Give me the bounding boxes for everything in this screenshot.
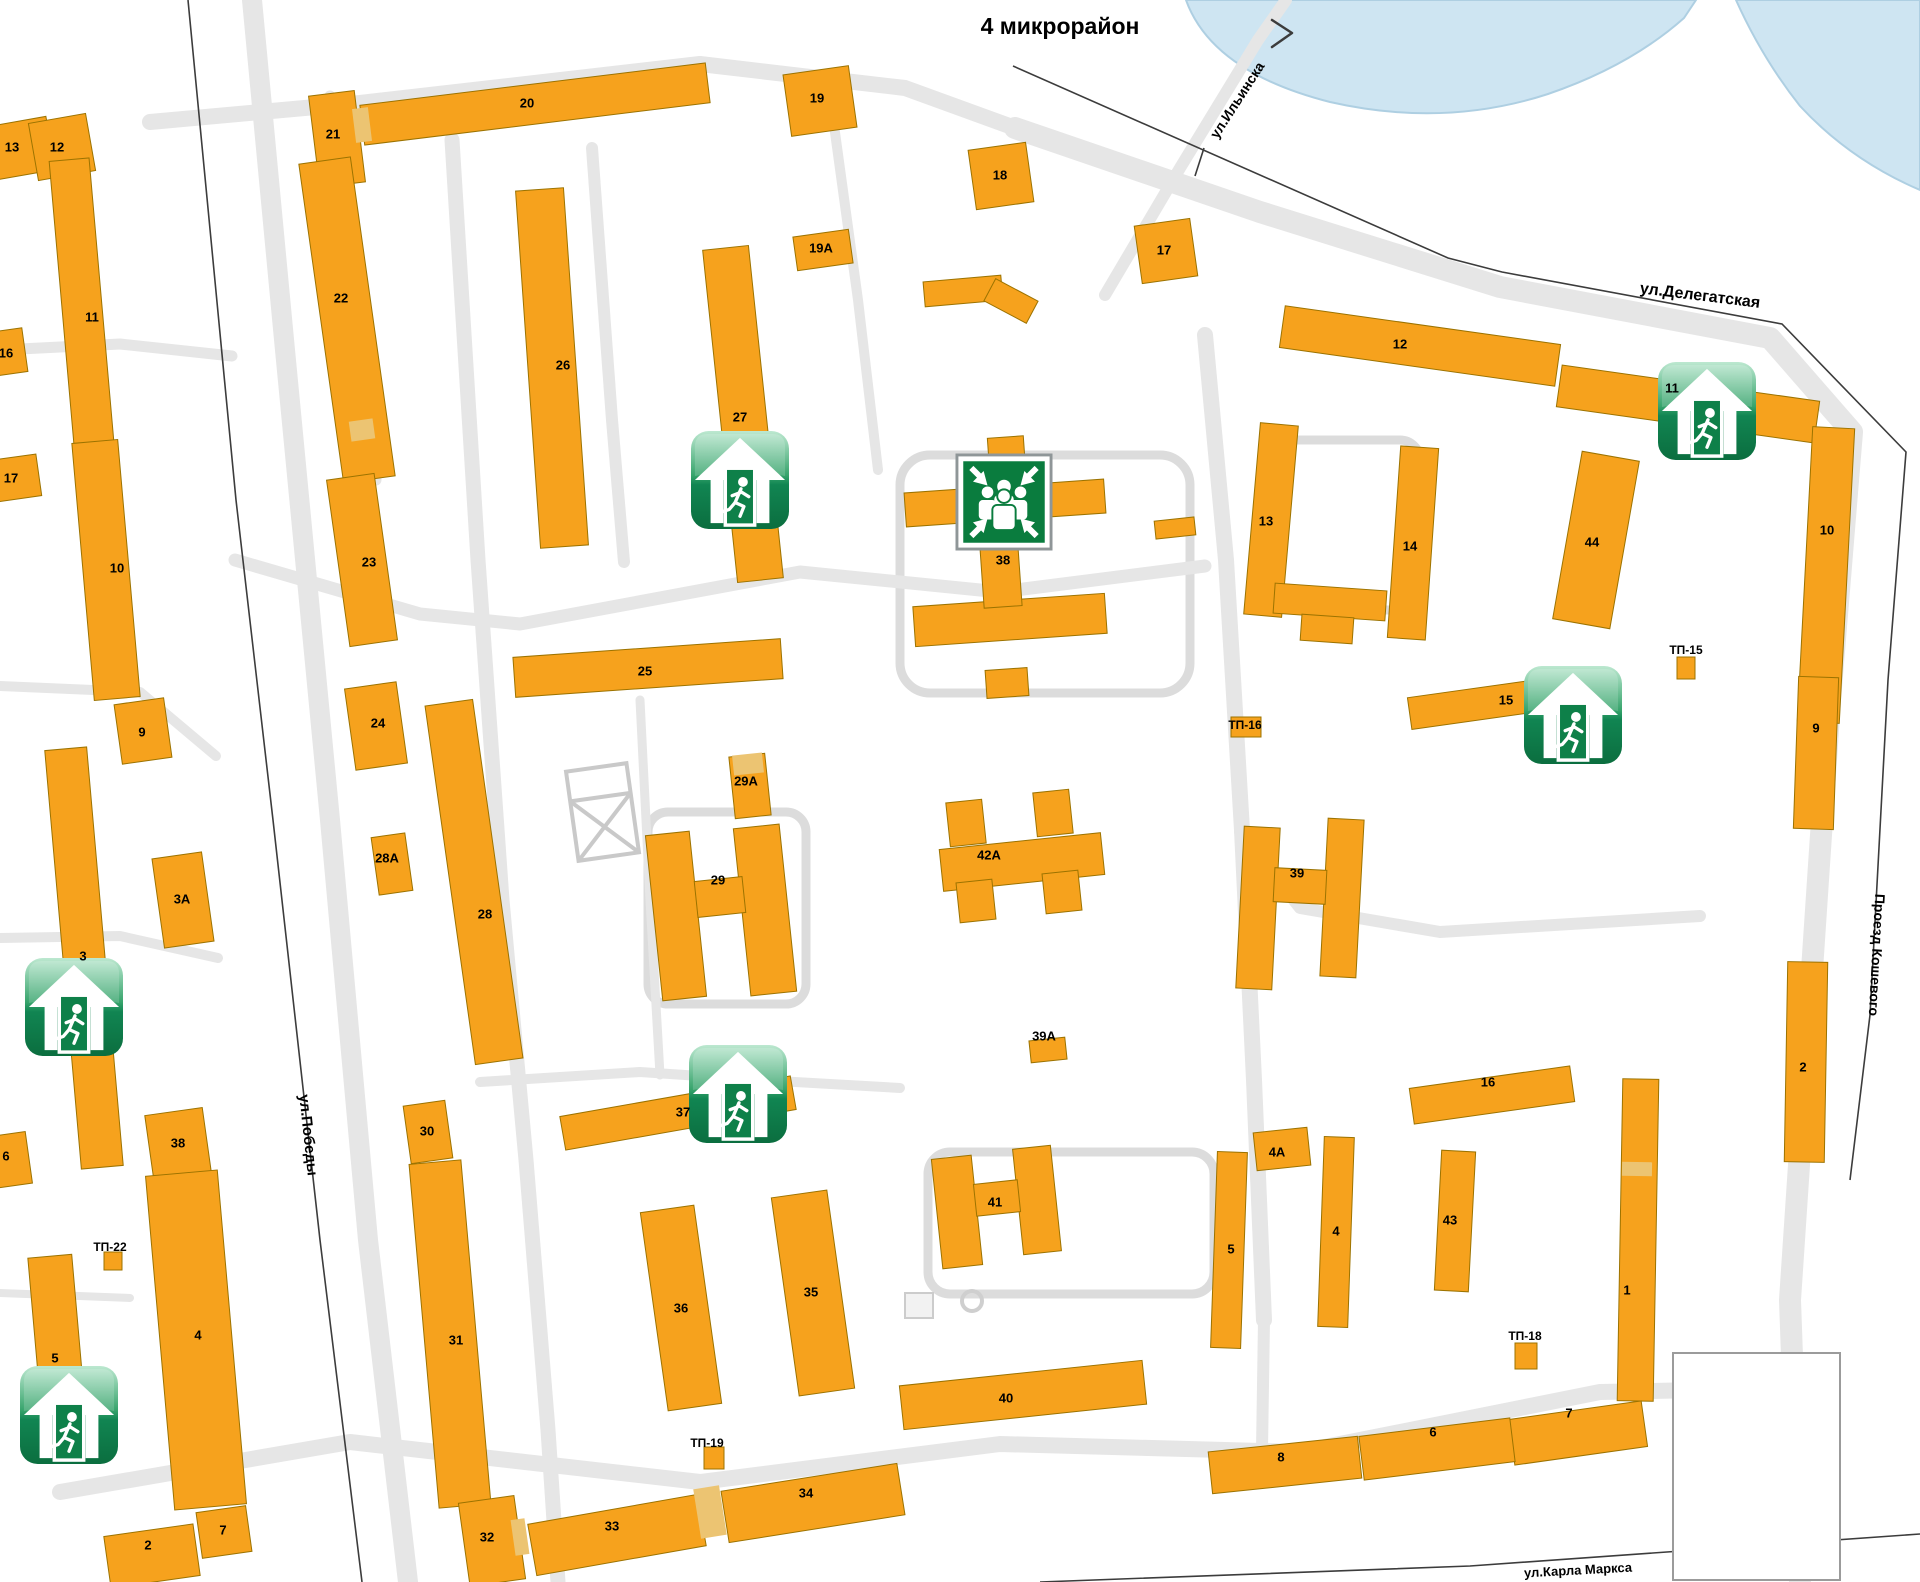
building-label: 22	[334, 291, 348, 306]
building-label: 5	[51, 1351, 58, 1366]
building-label: 40	[999, 1391, 1013, 1406]
road	[1105, 0, 1286, 295]
evacuation-exit-icon	[25, 958, 123, 1056]
building-label: 38	[171, 1136, 185, 1151]
building-passage	[732, 752, 764, 775]
building-label: 9	[138, 725, 145, 740]
building-label: 15	[1499, 693, 1513, 708]
building-label: 36	[674, 1301, 688, 1316]
evacuation-exit-icon	[691, 431, 789, 529]
building-label: 17	[1157, 243, 1171, 258]
building-12	[1279, 306, 1560, 386]
building-label: 30	[420, 1124, 434, 1139]
substation-label: ТП-18	[1508, 1329, 1542, 1343]
building-label: 21	[326, 127, 340, 142]
building-9	[1793, 676, 1838, 829]
substation-box	[1515, 1343, 1537, 1369]
building-40	[899, 1360, 1146, 1429]
building-label: 44	[1585, 535, 1600, 550]
building-41	[931, 1155, 982, 1269]
building-label: 43	[1443, 1213, 1457, 1228]
building-26	[516, 188, 589, 548]
icons-layer	[20, 362, 1756, 1464]
building-label: 23	[362, 555, 376, 570]
evacuation-exit-icon	[689, 1045, 787, 1143]
road	[1262, 1320, 1264, 1450]
assembly-point-icon	[956, 454, 1053, 551]
building-label: 31	[449, 1333, 463, 1348]
building-2	[104, 1524, 200, 1582]
substation-label: ТП-15	[1669, 643, 1703, 657]
building-label: 8	[1277, 1450, 1284, 1465]
building-label: 16	[0, 346, 13, 361]
substation-box	[104, 1252, 122, 1270]
building-label: 19A	[809, 241, 833, 256]
building-label: 35	[804, 1285, 818, 1300]
district-map-page: 13121116171093A33865427202122232428A2830…	[0, 0, 1920, 1582]
substation-label: ТП-16	[1228, 718, 1262, 732]
building-label: 14	[1403, 539, 1418, 554]
building-label: 6	[2, 1149, 9, 1164]
building-label: 18	[993, 168, 1007, 183]
building	[1273, 583, 1387, 621]
building-passage	[349, 418, 376, 441]
building-label: 5	[1227, 1242, 1234, 1257]
building-label: 28A	[375, 851, 399, 866]
building	[1154, 517, 1196, 539]
street-label: ул.Победы	[295, 1093, 320, 1176]
construction-frame	[566, 763, 639, 861]
building-label: 41	[988, 1195, 1002, 1210]
river-water	[1736, 0, 1920, 190]
building-label: 3	[79, 949, 86, 964]
building	[984, 279, 1038, 324]
building-label: 13	[1259, 514, 1273, 529]
building-label: 16	[1481, 1075, 1495, 1090]
playground-pad	[905, 1293, 933, 1318]
road	[830, 96, 878, 470]
building-label: 32	[480, 1530, 494, 1545]
building-label: 2	[144, 1538, 151, 1553]
district-map: 13121116171093A33865427202122232428A2830…	[0, 0, 1920, 1582]
building-passage	[1622, 1162, 1652, 1177]
building-41	[1013, 1145, 1062, 1254]
substation-label: ТП-19	[690, 1436, 724, 1450]
building-label: 11	[85, 310, 99, 325]
river-water	[1186, 0, 1696, 113]
building-label: 33	[605, 1519, 619, 1534]
building-label: 29A	[734, 774, 758, 789]
building-10	[72, 439, 140, 700]
building-label: 19	[810, 91, 824, 106]
building-label: 12	[50, 140, 64, 155]
building	[1300, 614, 1354, 644]
road	[0, 344, 232, 356]
street-label: Проезд Кошевого	[1866, 893, 1888, 1016]
building-label: 24	[371, 716, 386, 731]
building-label: 42A	[977, 848, 1001, 863]
evacuation-exit-icon	[1524, 666, 1622, 764]
road	[592, 148, 624, 562]
building-1	[1617, 1079, 1659, 1402]
building-label: 38	[996, 553, 1010, 568]
building-22	[299, 157, 395, 483]
building-label: 9	[1812, 721, 1819, 736]
building-28	[425, 699, 523, 1064]
substation-box	[704, 1447, 724, 1469]
building-label: 28	[478, 907, 492, 922]
building-label: 25	[638, 664, 652, 679]
building-label: 3A	[174, 892, 191, 907]
building-label: 37	[676, 1105, 690, 1120]
map-title: 4 микрорайон	[981, 13, 1140, 39]
building-label: 26	[556, 358, 570, 373]
building-label: 10	[1820, 523, 1834, 538]
building-label: 6	[1429, 1425, 1436, 1440]
building-42A	[956, 879, 996, 923]
evacuation-exit-icon	[1658, 362, 1756, 460]
building-39	[1320, 818, 1364, 978]
building-38	[985, 668, 1029, 699]
building-label: 4	[1332, 1224, 1340, 1239]
building-label: 27	[733, 410, 747, 425]
substation-label: ТП-22	[93, 1240, 127, 1254]
roads-layer	[0, 0, 1852, 1582]
building-label: 12	[1393, 337, 1407, 352]
building-label: 7	[1565, 1406, 1572, 1421]
building-label: 20	[520, 96, 534, 111]
building-42A	[946, 799, 986, 847]
evacuation-exit-icon	[20, 1366, 118, 1464]
building-label: 34	[799, 1486, 814, 1501]
building-label: 13	[5, 140, 19, 155]
building-label: 2	[1799, 1060, 1806, 1075]
building-label: 4A	[1269, 1145, 1286, 1160]
substation-box	[1677, 657, 1695, 679]
empty-block	[1673, 1353, 1840, 1580]
street-label: ул.Карла Маркса	[1524, 1560, 1633, 1581]
building-42A	[1042, 870, 1082, 914]
building-6	[1359, 1418, 1515, 1480]
building-label: 39A	[1032, 1029, 1056, 1044]
building-label: 7	[219, 1523, 226, 1538]
building-label: 39	[1290, 866, 1304, 881]
water-layer	[1186, 0, 1920, 190]
building-label: 10	[110, 561, 124, 576]
building-label: 11	[1665, 381, 1679, 396]
building-label: 1	[1623, 1283, 1630, 1298]
building-label: 29	[711, 873, 725, 888]
building-label: 17	[4, 471, 18, 486]
building-42A	[1033, 789, 1073, 837]
building-label: 4	[194, 1328, 202, 1343]
